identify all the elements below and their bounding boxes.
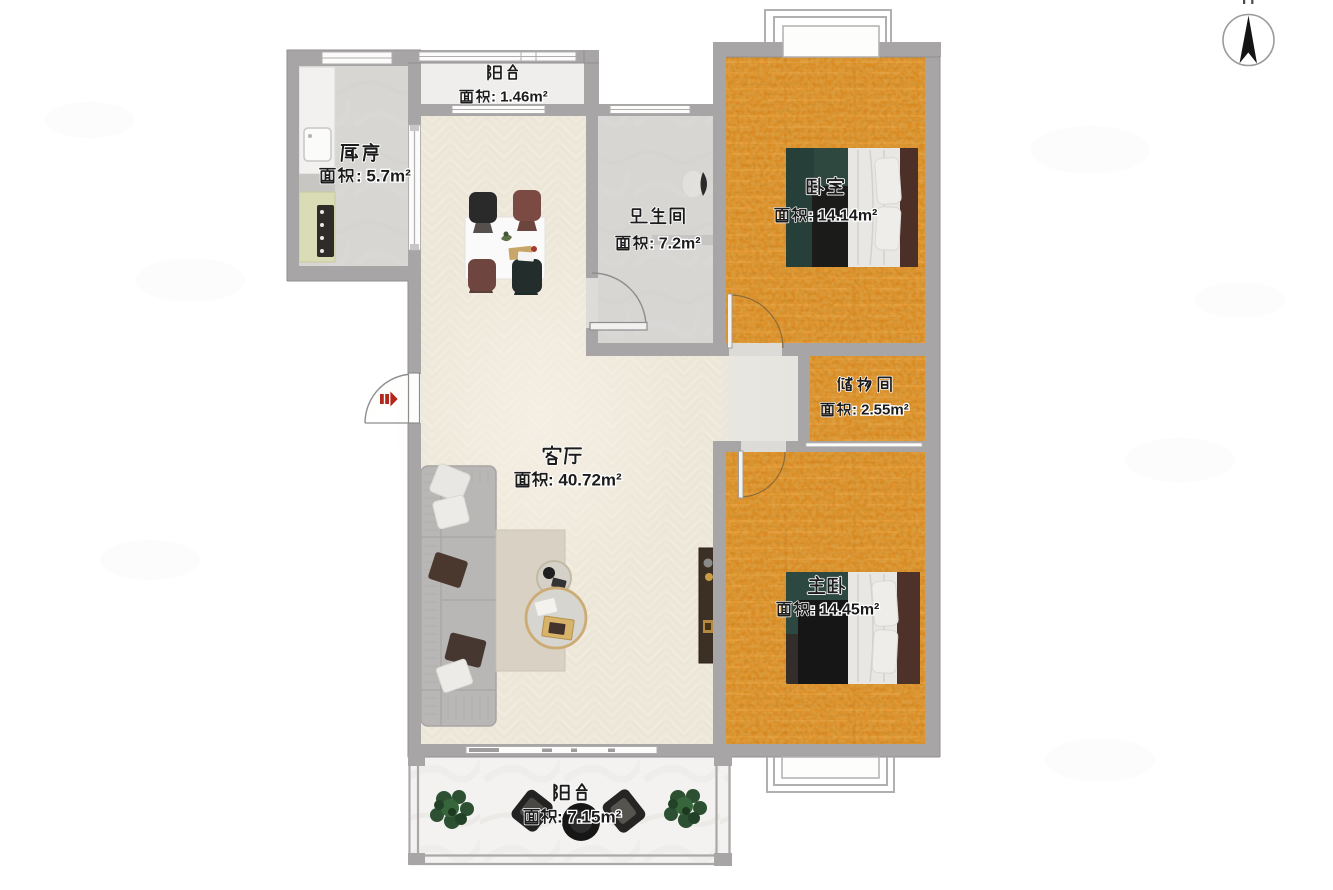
svg-text:: 1.46m²: : 1.46m² (491, 89, 548, 106)
svg-text:: 14.45m²: : 14.45m² (810, 601, 879, 618)
svg-text:: 14.14m²: : 14.14m² (808, 207, 877, 224)
svg-text:: 5.7m²: : 5.7m² (356, 167, 411, 186)
svg-text:: 7.2m²: : 7.2m² (649, 235, 701, 252)
svg-text:: 7.15m²: : 7.15m² (557, 807, 622, 826)
svg-text:: 2.55m²: : 2.55m² (852, 402, 909, 419)
svg-text:: 40.72m²: : 40.72m² (548, 470, 622, 489)
